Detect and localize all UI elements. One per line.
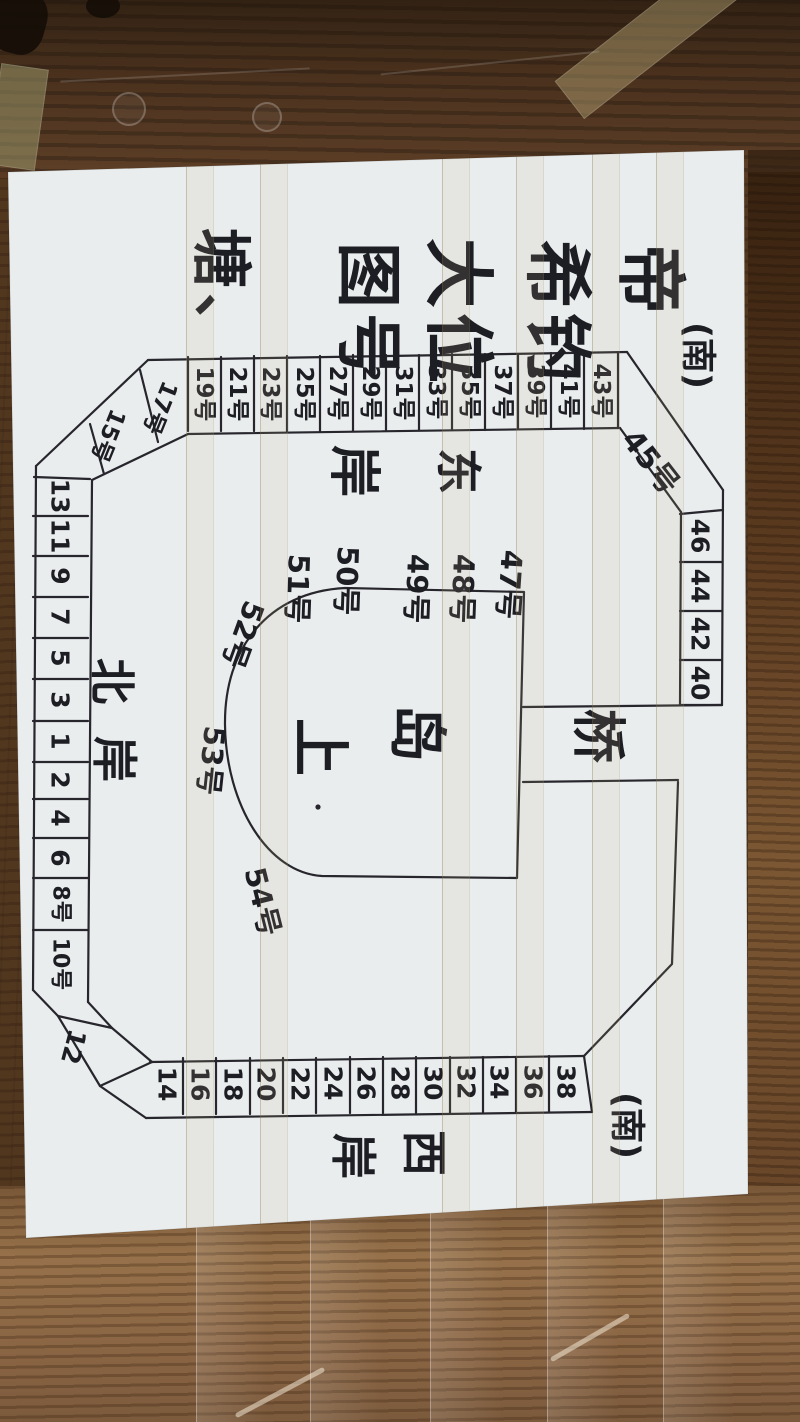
photo-scene: 帝 希钓 大位 图号 塘、 (南) (南) 东 岸 北 岸 西 岸 岛 上 桥 … (0, 0, 800, 1422)
tape-seam (442, 150, 470, 1240)
tape-seam (592, 150, 620, 1240)
tape-seam (186, 150, 214, 1240)
tape-seam (260, 150, 288, 1240)
tape-seam (656, 150, 684, 1240)
tape-seam (516, 150, 544, 1240)
